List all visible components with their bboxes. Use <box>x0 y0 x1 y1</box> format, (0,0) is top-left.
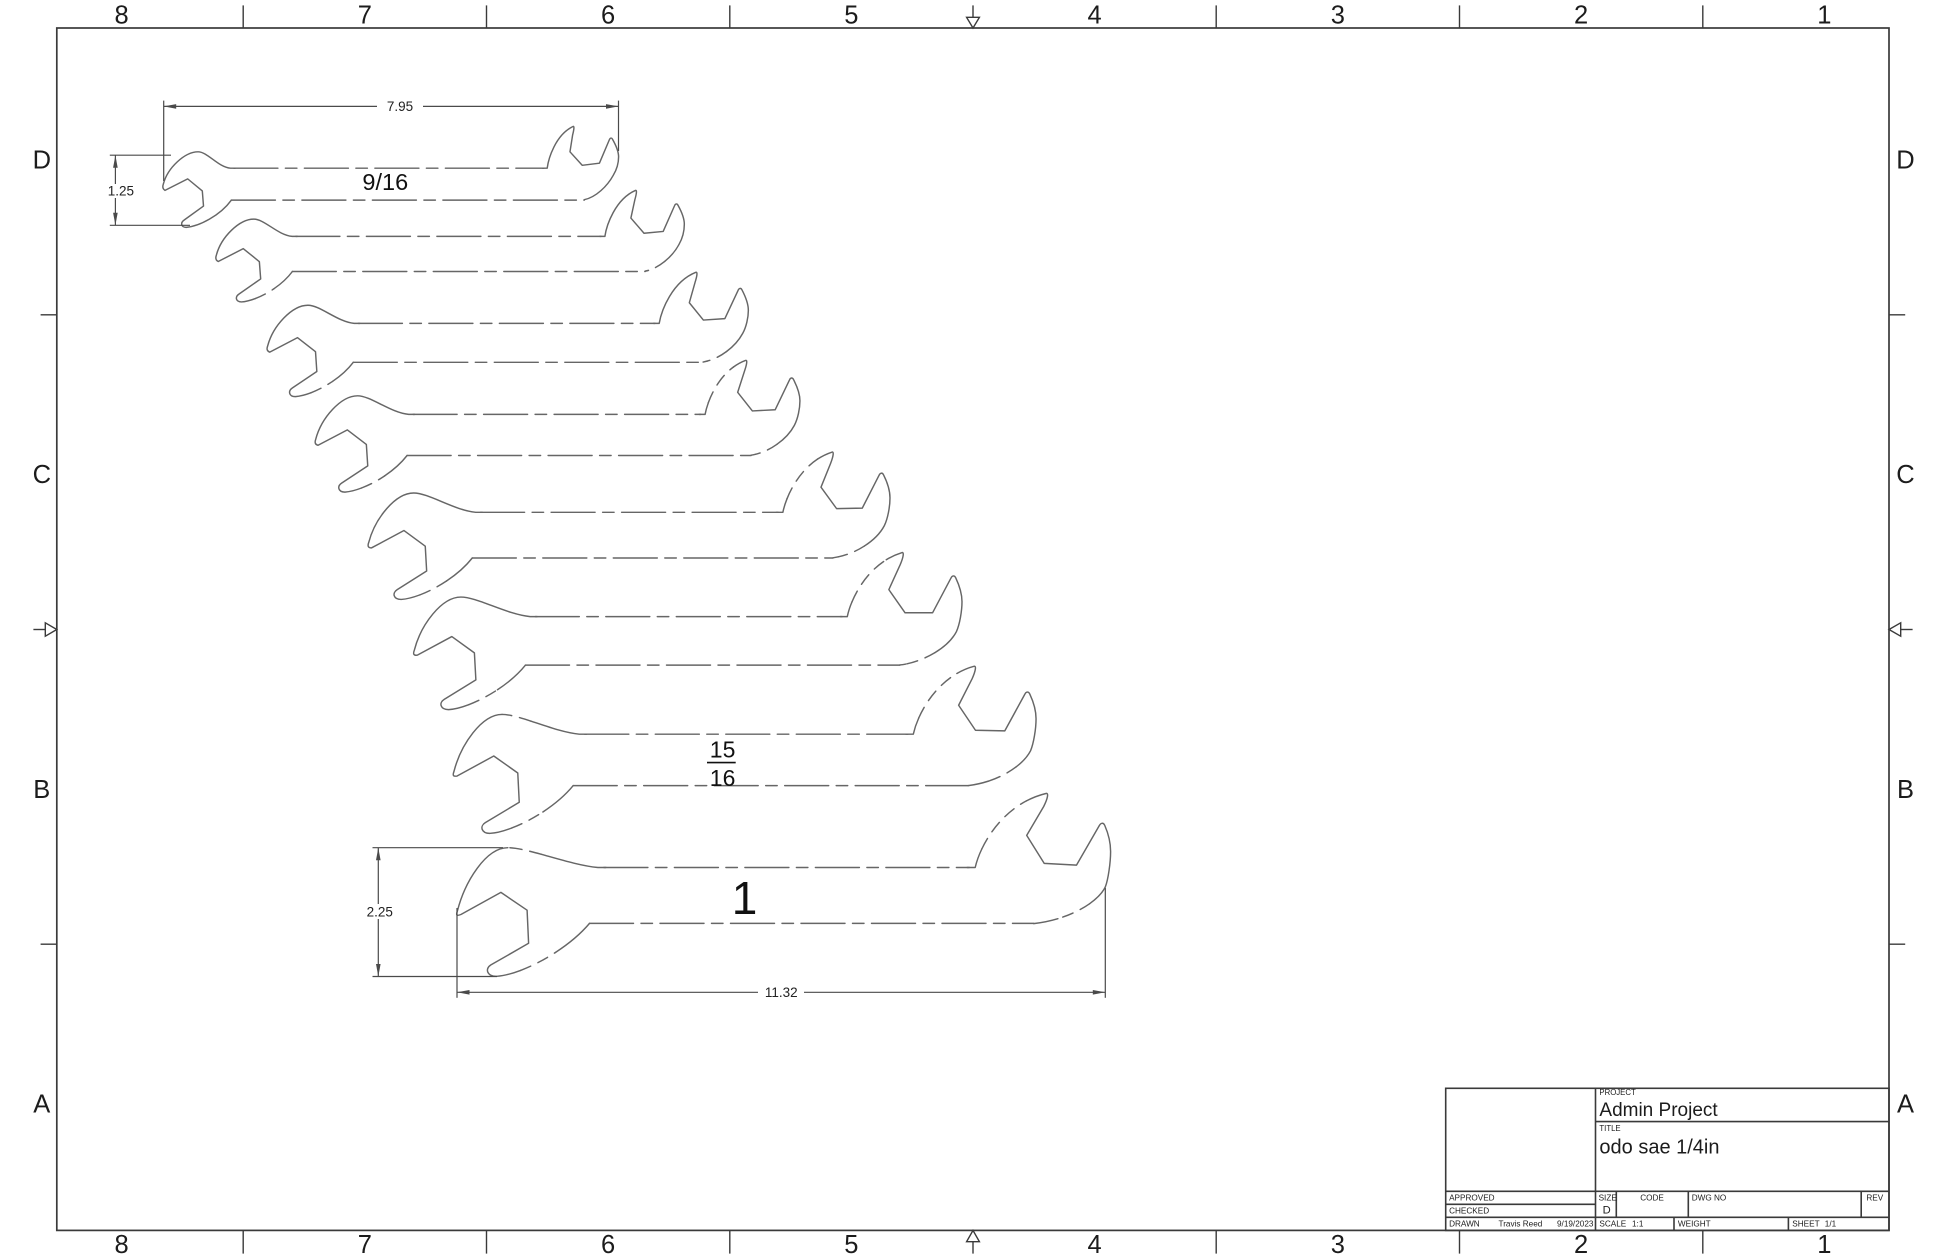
svg-text:D: D <box>33 146 51 174</box>
svg-text:DWG NO: DWG NO <box>1692 1193 1727 1202</box>
svg-text:8: 8 <box>115 1231 129 1259</box>
svg-text:6: 6 <box>601 1231 615 1259</box>
svg-text:C: C <box>33 461 51 489</box>
svg-text:A: A <box>33 1091 50 1119</box>
svg-text:1: 1 <box>1817 1231 1831 1259</box>
svg-text:6: 6 <box>601 2 615 30</box>
svg-text:4: 4 <box>1088 2 1102 30</box>
svg-text:7: 7 <box>358 2 372 30</box>
svg-text:CODE: CODE <box>1640 1193 1664 1202</box>
svg-text:9/16: 9/16 <box>362 169 408 195</box>
svg-text:1: 1 <box>1817 2 1831 30</box>
svg-text:7.95: 7.95 <box>387 99 413 114</box>
svg-text:B: B <box>33 776 50 804</box>
svg-text:16: 16 <box>710 765 736 791</box>
svg-text:A: A <box>1897 1091 1914 1119</box>
svg-text:APPROVED: APPROVED <box>1449 1193 1495 1202</box>
svg-text:3: 3 <box>1331 2 1345 30</box>
svg-text:SIZE: SIZE <box>1599 1193 1618 1202</box>
svg-text:2: 2 <box>1574 1231 1588 1259</box>
svg-text:D: D <box>1603 1204 1611 1216</box>
svg-text:8: 8 <box>115 2 129 30</box>
svg-text:11.32: 11.32 <box>765 985 798 1000</box>
svg-text:4: 4 <box>1088 1231 1102 1259</box>
svg-text:2: 2 <box>1574 2 1588 30</box>
svg-text:1:1: 1:1 <box>1632 1219 1644 1228</box>
svg-text:SCALE: SCALE <box>1599 1219 1626 1228</box>
svg-text:WEIGHT: WEIGHT <box>1678 1219 1711 1228</box>
svg-text:1/1: 1/1 <box>1825 1219 1837 1228</box>
svg-text:SHEET: SHEET <box>1792 1219 1819 1228</box>
svg-text:3: 3 <box>1331 1231 1345 1259</box>
svg-text:5: 5 <box>844 2 858 30</box>
svg-text:D: D <box>1896 146 1914 174</box>
svg-text:REV: REV <box>1866 1193 1883 1202</box>
svg-text:5: 5 <box>844 1231 858 1259</box>
svg-text:C: C <box>1896 461 1914 489</box>
svg-text:Travis Reed: Travis Reed <box>1499 1219 1543 1228</box>
svg-text:CHECKED: CHECKED <box>1449 1206 1489 1215</box>
svg-text:TITLE: TITLE <box>1599 1124 1620 1133</box>
svg-text:B: B <box>1897 776 1914 804</box>
svg-text:odo sae 1/4in: odo sae 1/4in <box>1599 1137 1719 1159</box>
svg-text:9/19/2023: 9/19/2023 <box>1557 1219 1594 1228</box>
svg-text:1.25: 1.25 <box>108 184 134 199</box>
svg-text:2.25: 2.25 <box>367 904 393 919</box>
svg-text:DRAWN: DRAWN <box>1449 1219 1480 1228</box>
svg-text:7: 7 <box>358 1231 372 1259</box>
svg-text:Admin Project: Admin Project <box>1599 1100 1718 1121</box>
svg-text:PROJECT: PROJECT <box>1599 1088 1636 1097</box>
svg-text:15: 15 <box>710 736 736 762</box>
svg-text:1: 1 <box>732 872 758 924</box>
